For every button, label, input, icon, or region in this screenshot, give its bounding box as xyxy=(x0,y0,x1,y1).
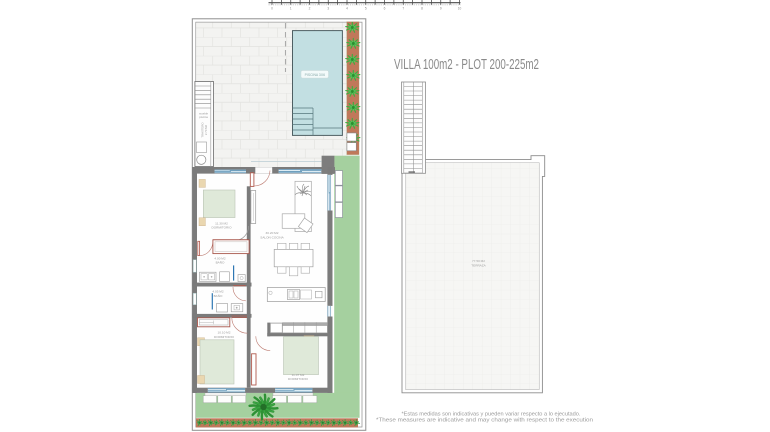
svg-text:SALON COCINA: SALON COCINA xyxy=(260,236,284,240)
svg-text:BAÑO: BAÑO xyxy=(214,293,223,298)
svg-text:BAÑO: BAÑO xyxy=(216,260,225,265)
svg-text:6: 6 xyxy=(384,6,386,10)
svg-text:*These measures are indicative: *These measures are indicative and may c… xyxy=(376,418,593,424)
svg-text:4: 4 xyxy=(346,6,348,10)
svg-text:VILLA 100m2 - PLOT 200-225m2: VILLA 100m2 - PLOT 200-225m2 xyxy=(394,57,539,73)
svg-text:9: 9 xyxy=(440,6,442,10)
svg-text:5: 5 xyxy=(365,6,367,10)
svg-text:2: 2 xyxy=(309,6,311,10)
svg-text:2.70 M2: 2.70 M2 xyxy=(204,125,208,136)
svg-text:DORMITORIO: DORMITORIO xyxy=(211,226,232,230)
svg-text:piscina: piscina xyxy=(199,115,208,119)
svg-text:77.50 M2: 77.50 M2 xyxy=(472,259,485,263)
svg-text:DORMITORIO: DORMITORIO xyxy=(214,335,235,339)
svg-text:1: 1 xyxy=(290,6,292,10)
svg-text:3: 3 xyxy=(327,6,329,10)
svg-text:PISCINA 3X6: PISCINA 3X6 xyxy=(305,73,325,77)
svg-text:*Estas medidas son indicativas: *Estas medidas son indicativas y pueden … xyxy=(402,411,581,417)
svg-text:8: 8 xyxy=(421,6,423,10)
svg-text:7: 7 xyxy=(402,6,404,10)
svg-text:DORMITORIO: DORMITORIO xyxy=(288,377,309,381)
svg-text:10: 10 xyxy=(458,6,462,10)
svg-text:0: 0 xyxy=(271,6,273,10)
svg-text:TERRAZA: TERRAZA xyxy=(471,264,486,268)
